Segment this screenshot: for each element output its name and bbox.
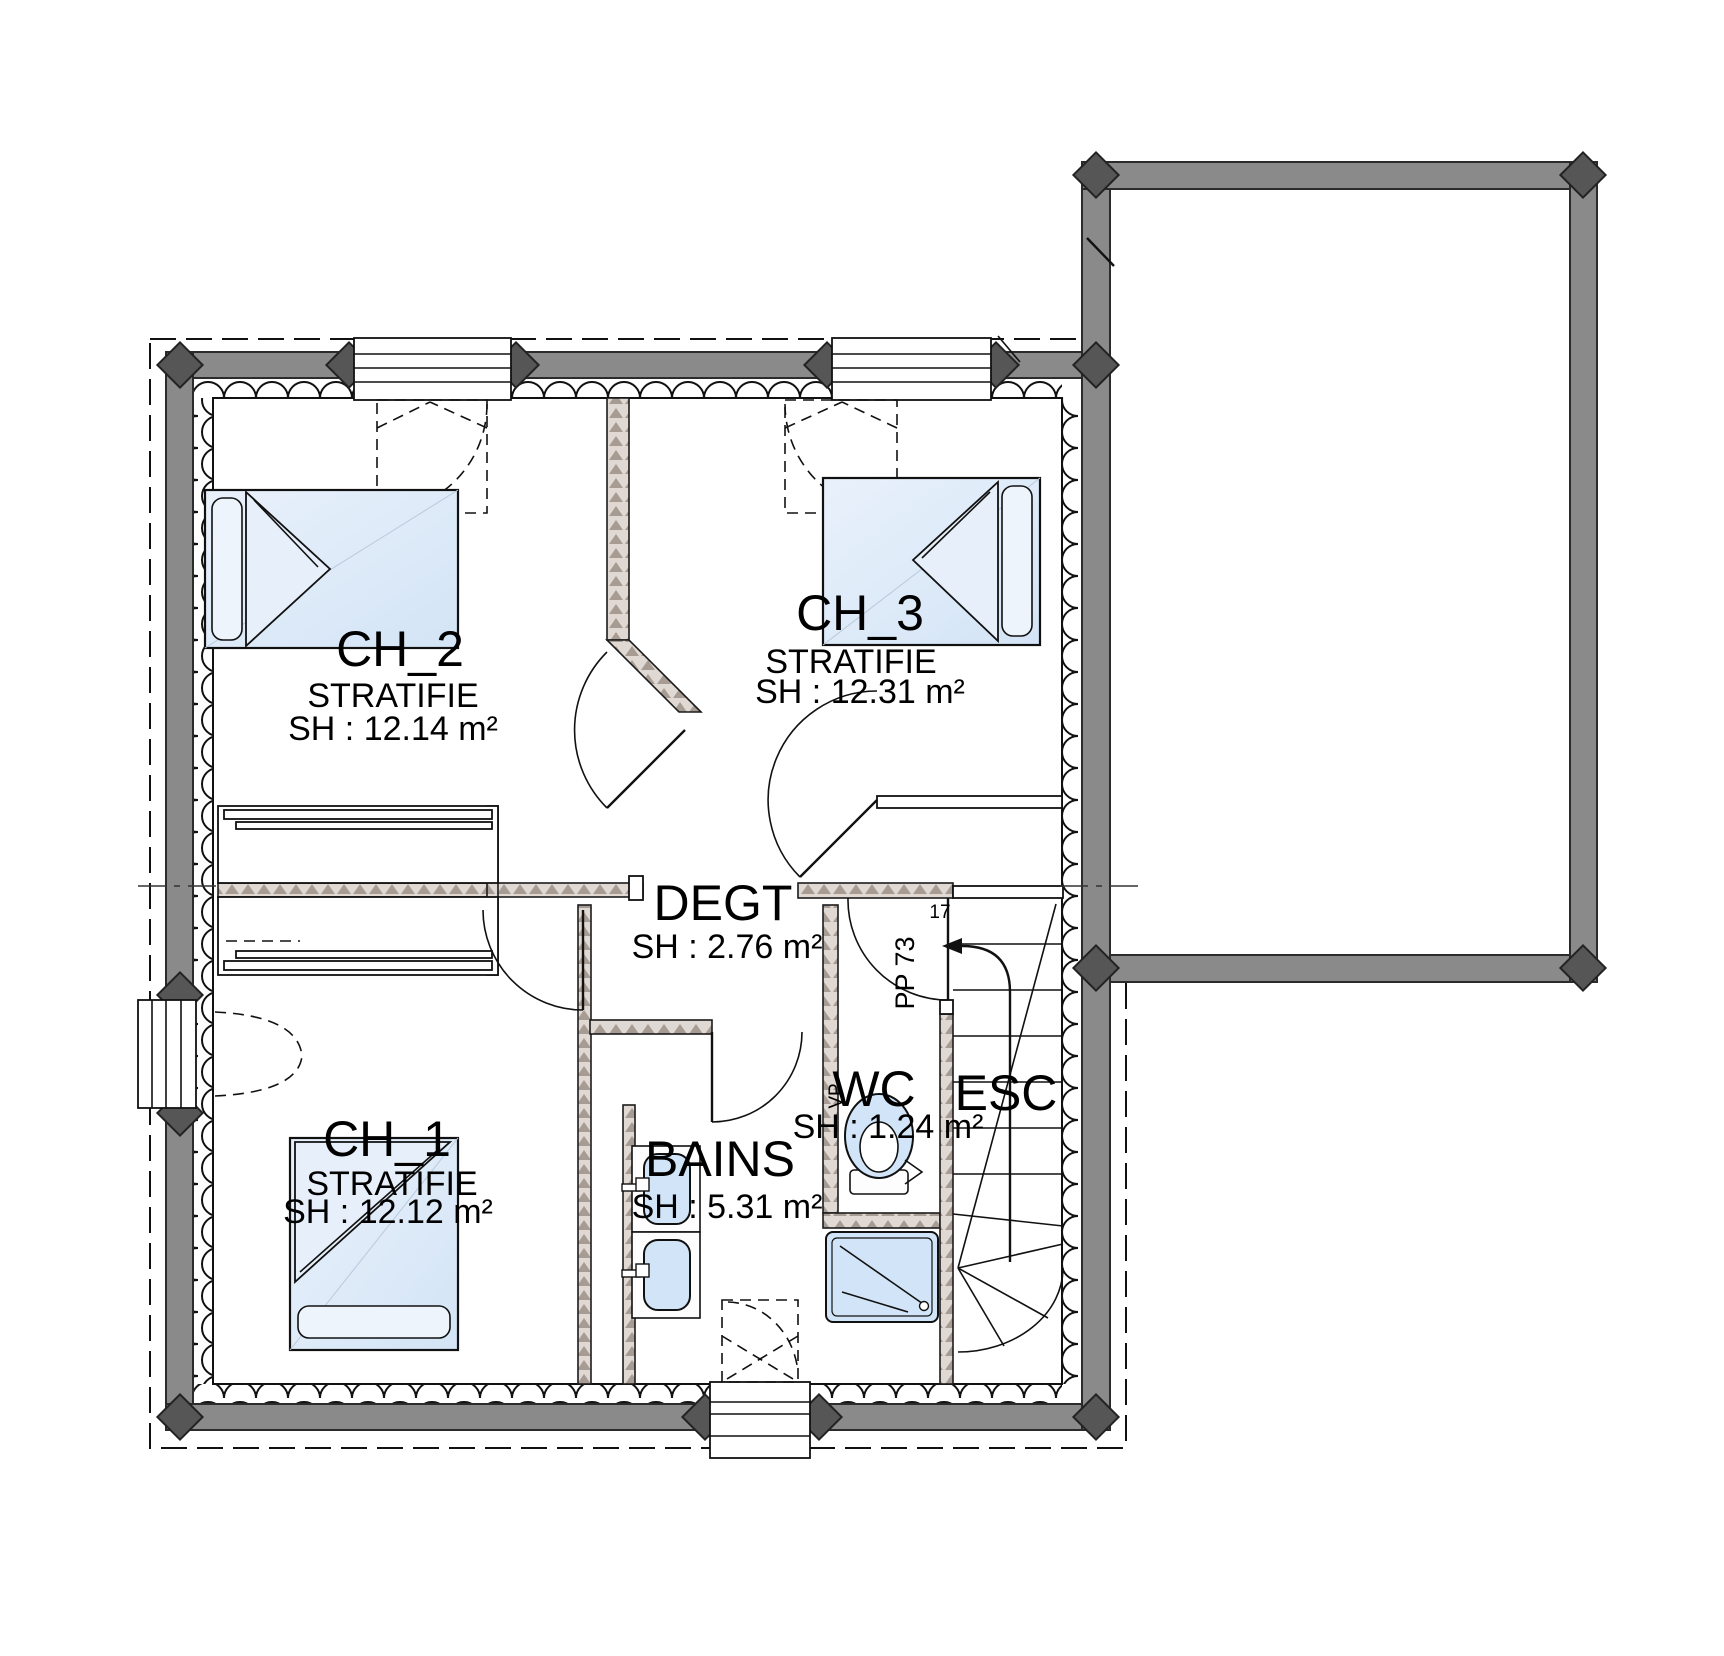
pillow [212,498,242,640]
pillow [1002,486,1032,636]
room-area-ch1: SH : 12.12 m² [283,1193,493,1231]
shower [826,1232,938,1322]
door-bottom [710,1382,810,1458]
floor-plan-svg: CH_2 STRATIFIE SH : 12.14 m² CH_3 STRATI… [0,0,1724,1656]
room-area-degt: SH : 2.76 m² [632,928,823,966]
floor-plan-page: { "plan_type": "floor-plan", "rooms": [ … [0,0,1724,1656]
window-ch3 [832,338,991,400]
room-area-ch2: SH : 12.14 m² [288,710,498,748]
stair-step-count: 17 [929,902,950,923]
washbasin-2 [622,1232,700,1318]
window-ch2 [354,338,511,400]
room-label-esc: ESC [955,1065,1058,1121]
room-label-ch3: CH_3 [796,585,924,641]
annex-floor [1110,189,1570,955]
pillow [298,1306,450,1338]
room-label-bains: BAINS [645,1131,795,1187]
door-width-label: PP 73 [890,936,920,1009]
room-area-ch3: SH : 12.31 m² [755,673,965,711]
room-label-degt: DEGT [654,875,793,931]
room-label-ch2: CH_2 [336,621,464,677]
room-area-bains: SH : 5.31 m² [632,1188,823,1226]
shower-drain [920,1302,929,1311]
room-label-ch1: CH_1 [323,1111,451,1167]
vent-label: VP [826,1083,847,1108]
